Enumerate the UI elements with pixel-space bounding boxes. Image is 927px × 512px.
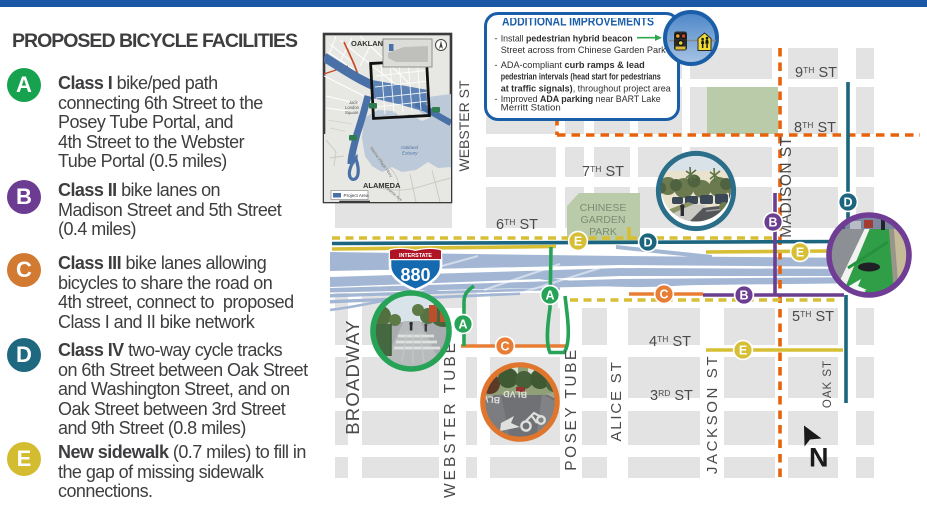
svg-text:Estuary: Estuary <box>402 151 418 156</box>
svg-text:3RD ST: 3RD ST <box>650 388 693 404</box>
svg-text:Install pedestrian hybrid beac: Install pedestrian hybrid beacon <box>501 34 633 45</box>
svg-text:BLVD: BLVD <box>503 389 528 400</box>
svg-text:PARK: PARK <box>589 226 617 238</box>
svg-text:E: E <box>739 344 747 358</box>
svg-text:9TH ST: 9TH ST <box>795 65 837 81</box>
svg-text:E: E <box>574 235 582 249</box>
svg-text:Project Area: Project Area <box>344 193 369 198</box>
svg-text:880: 880 <box>400 265 430 285</box>
svg-text:A: A <box>458 318 467 332</box>
svg-text:D: D <box>643 236 652 250</box>
svg-text:GARDEN: GARDEN <box>581 214 626 226</box>
svg-text:BROADWAY: BROADWAY <box>342 319 363 434</box>
svg-text:-: - <box>494 34 497 45</box>
svg-text:E: E <box>796 246 804 260</box>
svg-text:8TH ST: 8TH ST <box>794 120 836 136</box>
svg-text:CHINESE: CHINESE <box>580 202 627 214</box>
svg-text:C: C <box>500 340 509 354</box>
svg-text:A: A <box>545 289 554 303</box>
svg-text:Oakland: Oakland <box>401 145 419 150</box>
svg-text:5TH ST: 5TH ST <box>792 309 834 325</box>
svg-text:Merritt Station: Merritt Station <box>501 102 561 113</box>
svg-text:ALAMEDA: ALAMEDA <box>363 181 401 190</box>
svg-text:Square: Square <box>345 110 359 115</box>
svg-text:pedestrian intervals (head sta: pedestrian intervals (head start for ped… <box>501 72 661 83</box>
svg-text:JACKSON ST: JACKSON ST <box>704 354 721 474</box>
svg-text:ALICE ST: ALICE ST <box>608 360 625 441</box>
svg-text:-: - <box>494 60 497 71</box>
svg-text:D: D <box>843 196 852 210</box>
svg-text:6TH ST: 6TH ST <box>496 217 538 233</box>
svg-text:ADDITIONAL IMPROVEMENTS: ADDITIONAL IMPROVEMENTS <box>502 18 654 29</box>
svg-text:C: C <box>659 288 668 302</box>
svg-text:Street across from Chinese Gar: Street across from Chinese Garden Park <box>501 45 666 56</box>
svg-text:B: B <box>768 216 777 230</box>
svg-text:ADA-compliant curb ramps & lea: ADA-compliant curb ramps & lead <box>501 60 645 71</box>
svg-text:OAK ST: OAK ST <box>822 360 834 408</box>
svg-text:INTERSTATE: INTERSTATE <box>399 253 432 259</box>
svg-text:N: N <box>809 443 829 473</box>
svg-text:B: B <box>739 289 748 303</box>
svg-text:WEBSTER TUBE: WEBSTER TUBE <box>442 340 459 498</box>
svg-text:POSEY TUBE: POSEY TUBE <box>563 347 580 471</box>
svg-text:WEBSTER ST: WEBSTER ST <box>456 80 472 171</box>
svg-text:at traffic signals), throughou: at traffic signals), throughout project … <box>501 83 672 94</box>
svg-text:7TH ST: 7TH ST <box>582 164 624 180</box>
svg-text:4TH ST: 4TH ST <box>649 334 691 350</box>
svg-text:-: - <box>494 94 497 105</box>
